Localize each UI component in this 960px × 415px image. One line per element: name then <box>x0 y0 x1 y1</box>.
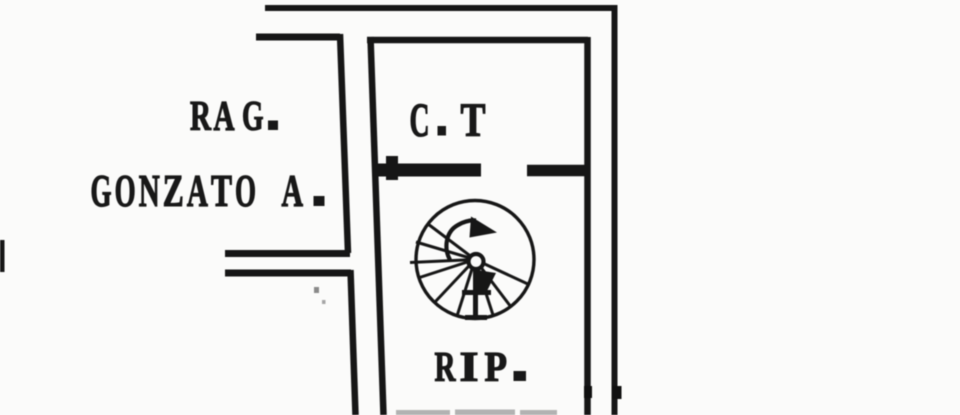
svg-text:G: G <box>242 93 264 140</box>
svg-text:P: P <box>485 344 508 391</box>
svg-text:A: A <box>282 165 304 216</box>
svg-text:C: C <box>410 95 430 147</box>
svg-text:T: T <box>211 165 232 216</box>
svg-text:N: N <box>139 165 160 216</box>
svg-text:G: G <box>91 165 112 216</box>
svg-text:R: R <box>435 344 457 391</box>
svg-text:Z: Z <box>163 165 184 216</box>
svg-text:O: O <box>235 165 256 216</box>
svg-text:R: R <box>190 93 212 140</box>
svg-text:I: I <box>460 344 479 391</box>
svg-text:T: T <box>461 95 486 147</box>
svg-text:A: A <box>187 165 208 216</box>
svg-text:O: O <box>115 165 136 216</box>
svg-text:A: A <box>214 93 235 140</box>
